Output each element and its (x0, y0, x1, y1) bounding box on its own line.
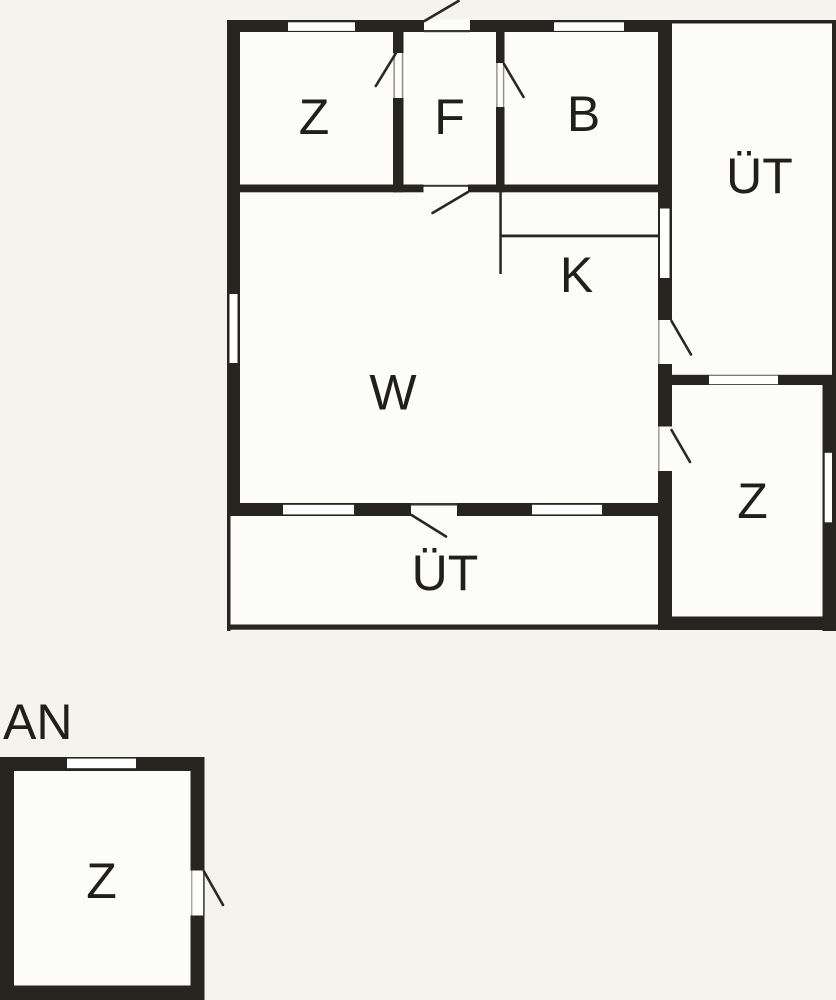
svg-text:K: K (560, 247, 593, 303)
svg-text:Z: Z (86, 853, 117, 909)
svg-text:B: B (567, 86, 600, 142)
svg-text:ÜT: ÜT (726, 148, 793, 204)
svg-text:F: F (434, 89, 465, 145)
svg-text:Z: Z (737, 473, 768, 529)
svg-text:Z: Z (299, 89, 330, 145)
svg-text:ÜT: ÜT (412, 545, 479, 601)
svg-text:AN: AN (3, 694, 72, 750)
svg-text:W: W (369, 365, 417, 421)
